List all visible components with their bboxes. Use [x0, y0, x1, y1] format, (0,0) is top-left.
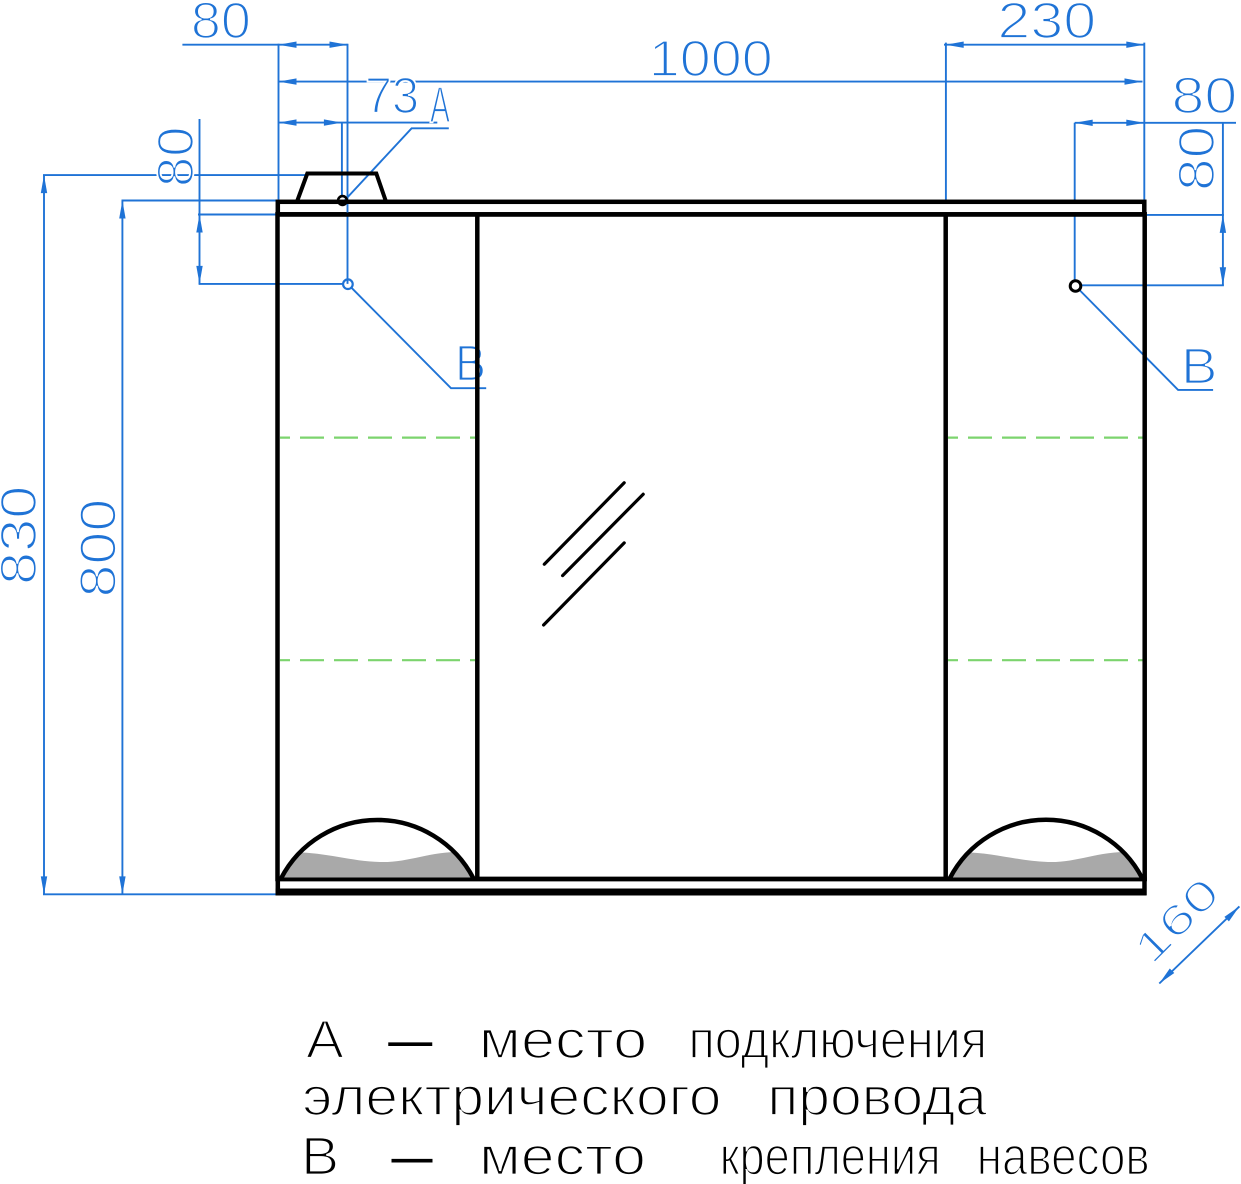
svg-text:провода: провода	[767, 1067, 988, 1127]
svg-text:80: 80	[147, 127, 204, 187]
svg-text:А: А	[306, 1010, 344, 1070]
svg-text:73: 73	[365, 67, 419, 124]
svg-text:крепления: крепления	[720, 1127, 941, 1184]
svg-text:A: A	[430, 76, 450, 133]
svg-text:80: 80	[1172, 67, 1238, 124]
svg-text:место: место	[479, 1127, 646, 1184]
svg-text:1000: 1000	[649, 30, 773, 87]
svg-text:—: —	[388, 1010, 432, 1070]
svg-text:электрического: электрического	[302, 1067, 721, 1127]
svg-text:B: B	[455, 335, 486, 392]
svg-text:—: —	[392, 1127, 433, 1184]
svg-text:830: 830	[0, 486, 47, 585]
svg-text:230: 230	[997, 0, 1096, 49]
svg-text:160: 160	[1125, 868, 1229, 972]
svg-text:B: B	[1181, 338, 1218, 395]
svg-text:подключения: подключения	[689, 1010, 988, 1070]
svg-text:навесов: навесов	[977, 1127, 1150, 1184]
svg-text:В: В	[301, 1127, 339, 1184]
svg-text:80: 80	[1168, 126, 1225, 191]
svg-text:80: 80	[191, 0, 251, 49]
svg-text:800: 800	[70, 499, 127, 598]
svg-text:место: место	[479, 1010, 647, 1070]
